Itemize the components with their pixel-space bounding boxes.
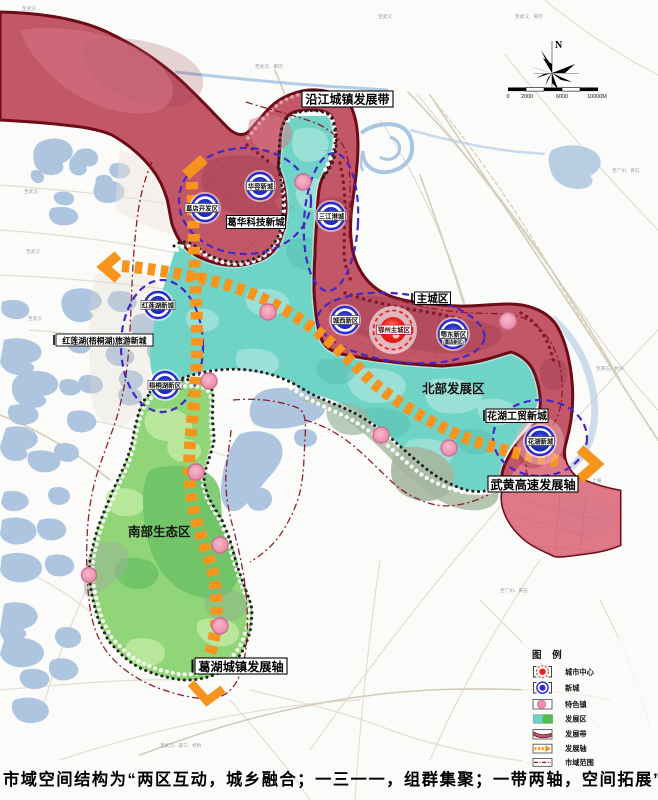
svg-text:沿江城镇发展带: 沿江城镇发展带 xyxy=(304,92,389,107)
svg-text:特色镇: 特色镇 xyxy=(565,700,587,709)
svg-text:至武汉、黄冈: 至武汉、黄冈 xyxy=(255,63,283,70)
svg-text:上海: 上海 xyxy=(592,477,602,484)
svg-text:葛华科技新城: 葛华科技新城 xyxy=(226,217,285,229)
svg-text:葛湖城镇发展轴: 葛湖城镇发展轴 xyxy=(197,659,283,674)
svg-text:至武汉: 至武汉 xyxy=(22,5,36,12)
svg-text:至黄石、杭州: 至黄石、杭州 xyxy=(596,365,624,372)
svg-text:三江港城: 三江港城 xyxy=(319,211,345,220)
svg-text:北部发展区: 北部发展区 xyxy=(422,381,485,396)
svg-text:至武汉: 至武汉 xyxy=(24,188,38,195)
svg-text:红莲湖新城: 红莲湖新城 xyxy=(142,300,175,309)
svg-text:市域范围: 市域范围 xyxy=(565,758,594,767)
svg-text:红莲湖(梧桐湖)旅游新城: 红莲湖(梧桐湖)旅游新城 xyxy=(62,335,146,345)
svg-text:市域空间结构为“两区互动，城乡融合；一三一一，组群集聚；一带: 市域空间结构为“两区互动，城乡融合；一三一一，组群集聚；一带两轴，空间拓展” xyxy=(3,770,658,789)
svg-text:城西新区: 城西新区 xyxy=(333,315,359,324)
svg-text:至广州、黄石: 至广州、黄石 xyxy=(500,587,528,594)
svg-text:城市中心: 城市中心 xyxy=(565,667,595,676)
svg-text:华容新城: 华容新城 xyxy=(248,181,274,190)
svg-text:花湖新城: 花湖新城 xyxy=(528,436,554,445)
svg-text:葛店开发区: 葛店开发区 xyxy=(185,203,219,212)
svg-text:鄂东新区: 鄂东新区 xyxy=(441,329,467,338)
svg-text:N: N xyxy=(555,40,563,51)
svg-text:至武汉、黄冈: 至武汉、黄冈 xyxy=(515,13,543,20)
svg-text:花湖工贸新城: 花湖工贸新城 xyxy=(487,410,547,423)
svg-text:至武汉: 至武汉 xyxy=(26,248,40,255)
svg-text:至武汉、咸宁、柯桥: 至武汉、咸宁、柯桥 xyxy=(160,742,202,749)
svg-text:10000M: 10000M xyxy=(587,94,607,100)
svg-text:梧桐湖新区: 梧桐湖新区 xyxy=(149,380,182,389)
svg-text:6000: 6000 xyxy=(556,94,568,100)
svg-text:至武汉: 至武汉 xyxy=(28,315,42,322)
svg-text:0: 0 xyxy=(507,94,510,100)
svg-text:图 例: 图 例 xyxy=(532,649,566,661)
svg-text:2000: 2000 xyxy=(521,94,533,100)
svg-text:发展带: 发展带 xyxy=(564,730,587,739)
svg-text:新城: 新城 xyxy=(565,683,580,692)
svg-text:武黄高速发展轴: 武黄高速发展轴 xyxy=(490,477,575,492)
svg-text:鄂州主城区: 鄂州主城区 xyxy=(378,325,411,334)
svg-text:发展轴: 发展轴 xyxy=(564,744,587,753)
svg-text:至广州、黄石: 至广州、黄石 xyxy=(612,167,640,174)
svg-text:南部生态区: 南部生态区 xyxy=(128,524,191,539)
svg-text:(葛店新区): (葛店新区) xyxy=(443,339,464,346)
svg-text:主城区: 主城区 xyxy=(417,292,449,305)
svg-text:发展区: 发展区 xyxy=(564,715,587,724)
svg-text:至武汉: 至武汉 xyxy=(378,13,392,20)
